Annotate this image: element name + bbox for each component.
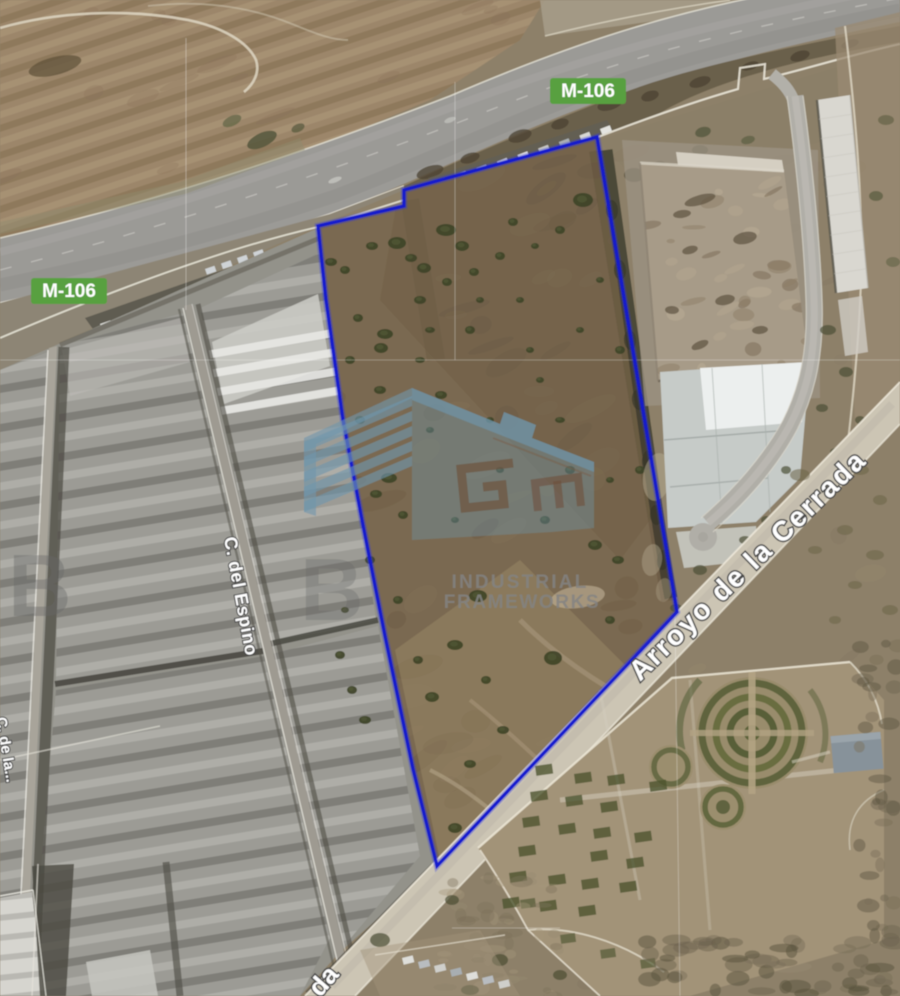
svg-text:FRAMEWORKS: FRAMEWORKS bbox=[444, 592, 600, 613]
svg-text:M-106: M-106 bbox=[42, 281, 96, 302]
svg-text:B: B bbox=[300, 540, 364, 639]
svg-text:M-106: M-106 bbox=[561, 81, 615, 102]
svg-text:INDUSTRIAL: INDUSTRIAL bbox=[451, 572, 588, 593]
svg-text:B: B bbox=[8, 536, 72, 635]
